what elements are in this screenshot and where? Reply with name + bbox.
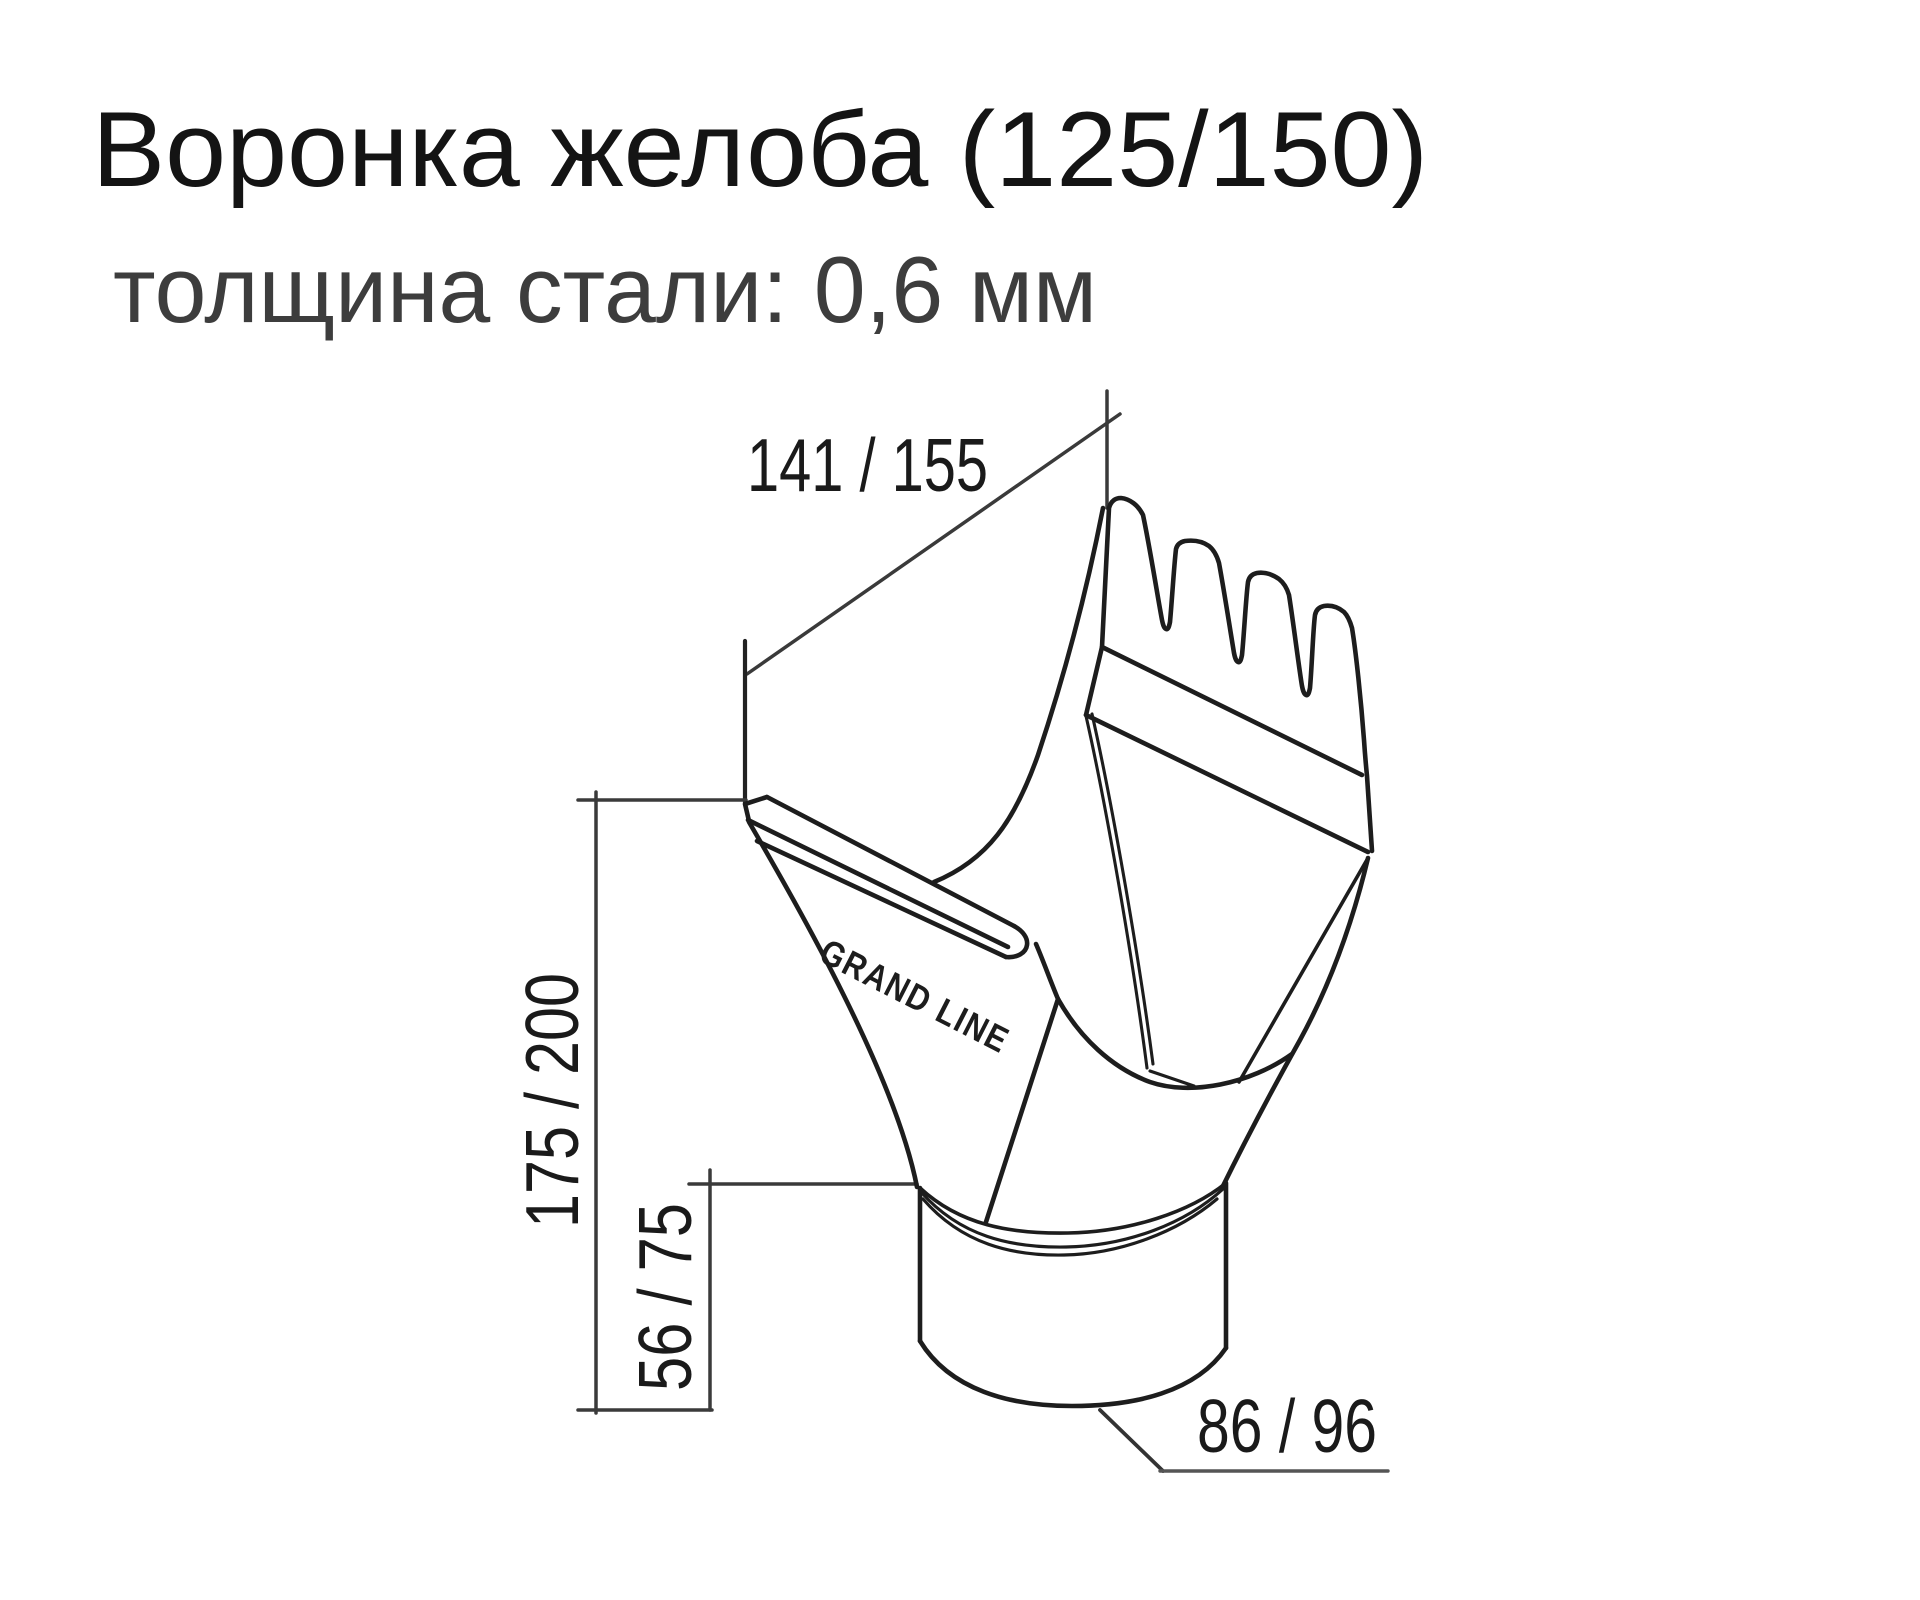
svg-text:175 / 200: 175 / 200 xyxy=(510,973,594,1228)
svg-text:толщина стали: 0,6 мм: толщина стали: 0,6 мм xyxy=(113,237,1097,342)
svg-text:86 / 96: 86 / 96 xyxy=(1197,1384,1377,1468)
svg-text:56 / 75: 56 / 75 xyxy=(623,1203,707,1391)
svg-text:Воронка желоба (125/150): Воронка желоба (125/150) xyxy=(92,89,1428,209)
svg-text:141 / 155: 141 / 155 xyxy=(747,423,988,507)
